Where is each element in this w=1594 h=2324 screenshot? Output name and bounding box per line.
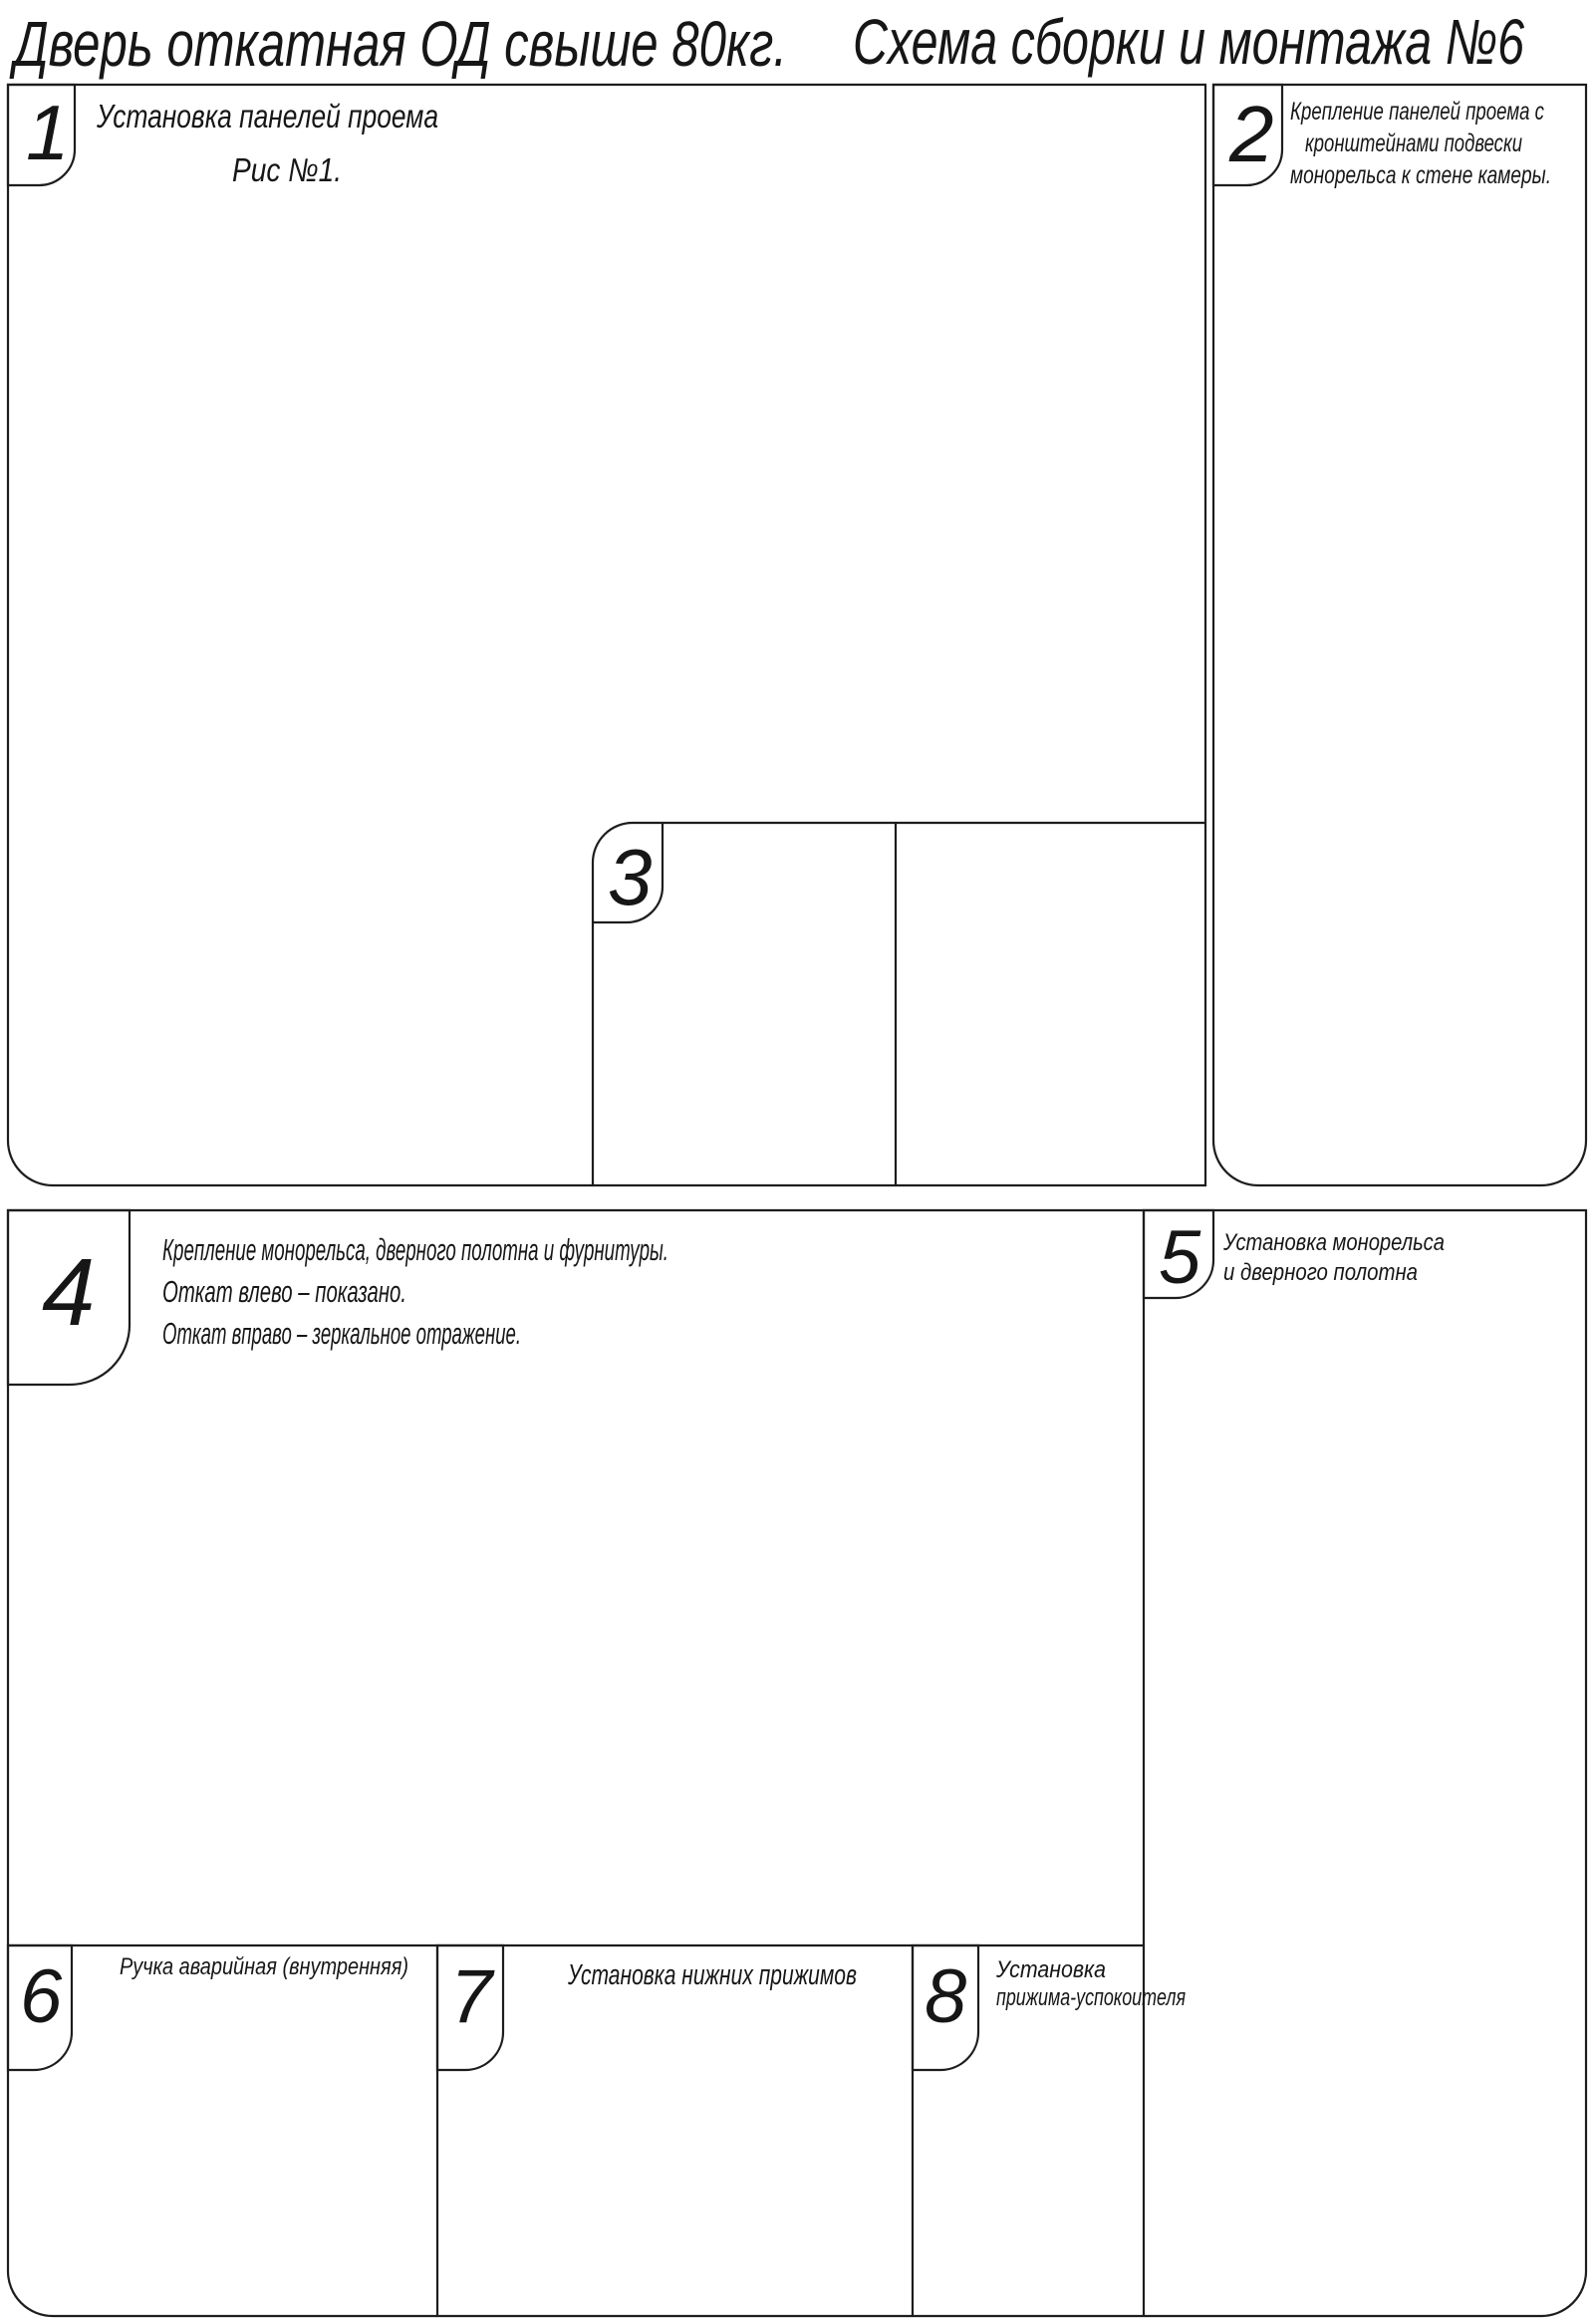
- svg-text:3: 3: [608, 833, 653, 921]
- svg-text:4: 4: [42, 1239, 95, 1346]
- svg-text:Установка панелей проема: Установка панелей проема: [96, 98, 438, 134]
- svg-text:Крепление монорельса, дверного: Крепление монорельса, дверного полотна и…: [162, 1232, 668, 1267]
- svg-text:кронштейнами подвески: кронштейнами подвески: [1305, 129, 1522, 157]
- svg-text:Рис №1.: Рис №1.: [232, 151, 342, 188]
- svg-text:Ручка аварийная (внутренняя): Ручка аварийная (внутренняя): [120, 1953, 408, 1980]
- svg-text:1: 1: [26, 89, 69, 176]
- svg-text:8: 8: [925, 1954, 966, 2039]
- svg-text:Крепление панелей проема с: Крепление панелей проема с: [1290, 98, 1544, 126]
- svg-text:монорельса к стене камеры.: монорельса к стене камеры.: [1290, 161, 1551, 189]
- svg-text:прижима-успокоителя: прижима-успокоителя: [996, 1984, 1186, 2011]
- svg-text:Схема сборки и монтажа №6: Схема сборки и монтажа №6: [853, 6, 1524, 78]
- svg-text:2: 2: [1228, 90, 1274, 178]
- svg-text:Установка нижних прижимов: Установка нижних прижимов: [567, 1959, 857, 1991]
- svg-text:Откат вправо – зеркальное отра: Откат вправо – зеркальное отражение.: [162, 1316, 521, 1351]
- svg-text:5: 5: [1159, 1215, 1201, 1300]
- svg-text:Установка монорельса: Установка монорельса: [1222, 1229, 1445, 1256]
- svg-text:7: 7: [450, 1954, 495, 2039]
- svg-text:6: 6: [20, 1954, 63, 2039]
- svg-text:Дверь откатная ОД свыше 80кг.: Дверь откатная ОД свыше 80кг.: [9, 8, 787, 80]
- svg-text:Установка: Установка: [995, 1956, 1106, 1983]
- svg-text:Откат влево – показано.: Откат влево – показано.: [162, 1274, 406, 1309]
- svg-text:и дверного полотна: и дверного полотна: [1223, 1259, 1418, 1286]
